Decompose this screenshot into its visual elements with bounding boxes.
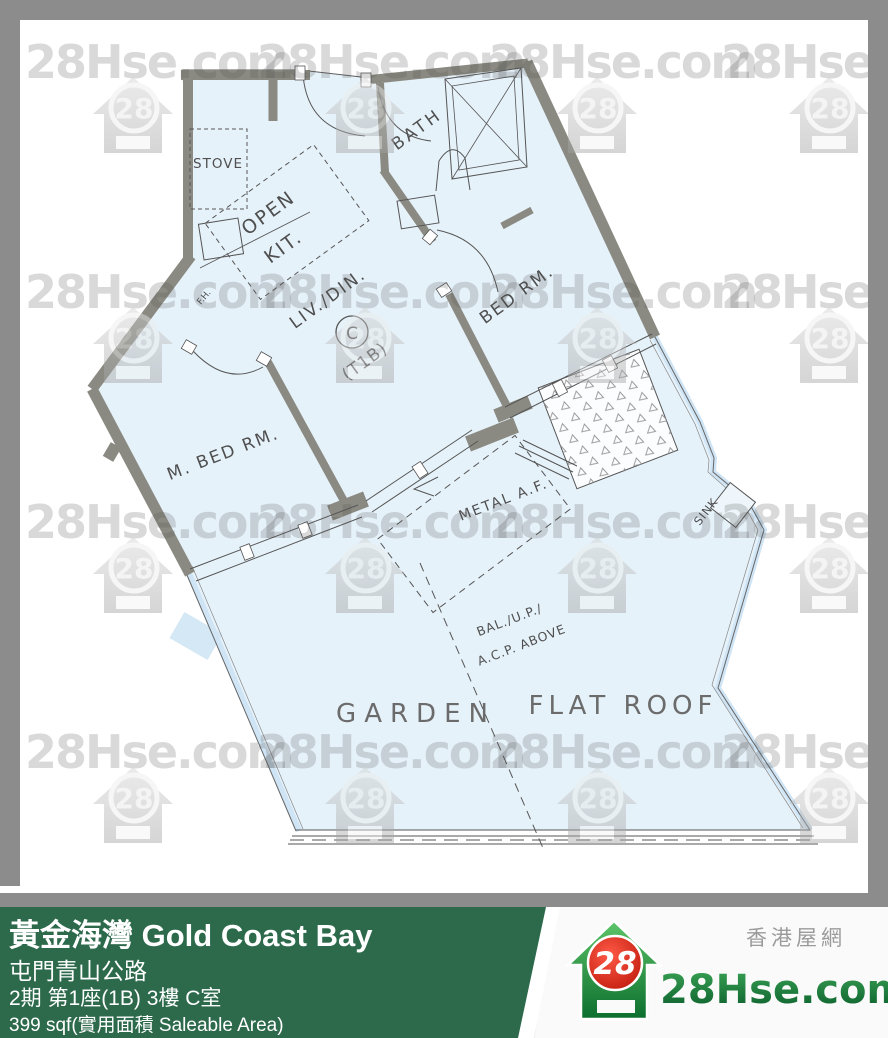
site-logo-panel: 香港屋網 28 28Hse.com <box>534 907 888 1038</box>
watermark-text: 28Hse.com <box>25 725 292 779</box>
watermark-text: 28Hse.com <box>721 265 888 319</box>
watermark-text: 28Hse.com <box>721 725 888 779</box>
watermark-text: 28Hse.com <box>25 265 292 319</box>
saleable-area: 399 sqf(實用面積 Saleable Area) <box>9 1010 284 1037</box>
site-name-chinese: 香港屋網 <box>746 926 846 950</box>
frame-left <box>0 0 20 886</box>
floorplan-page: 28 <box>0 0 888 1038</box>
label-stove: STOVE <box>193 156 243 172</box>
label-flat-roof: FLAT ROOF <box>529 691 718 721</box>
estate-address: 屯門青山公路 <box>9 952 147 986</box>
watermark-text: 28Hse.com <box>489 265 756 319</box>
logo-house-icon: 28 <box>568 921 660 1019</box>
watermark-text: 28Hse.com <box>489 35 756 89</box>
site-logo: 香港屋網 28 28Hse.com <box>534 907 888 1038</box>
watermark-text: 28Hse.com <box>257 265 524 319</box>
site-name-text: 28Hse.com <box>660 967 888 1013</box>
frame-top <box>0 0 888 20</box>
watermark-text: 28Hse.com <box>257 495 524 549</box>
unit-description: 2期 第1座(1B) 3樓 C室 <box>9 982 221 1012</box>
watermark-text: 28Hse.com <box>257 725 524 779</box>
estate-title: 黃金海灣 Gold Coast Bay <box>9 910 372 955</box>
watermark-text: 28Hse.com <box>489 495 756 549</box>
watermark-text: 28Hse.com <box>25 35 292 89</box>
watermark-text: 28Hse.com <box>25 495 292 549</box>
watermark-text: 28Hse.com <box>257 35 524 89</box>
frame-divider-bar <box>0 893 888 907</box>
frame-right <box>868 0 888 893</box>
watermark-text: 28Hse.com <box>489 725 756 779</box>
svg-text:28: 28 <box>593 946 636 982</box>
watermark-text: 28Hse.com <box>721 495 888 549</box>
floor-plan: 28 <box>0 0 888 893</box>
watermark-text: 28Hse.com <box>721 35 888 89</box>
